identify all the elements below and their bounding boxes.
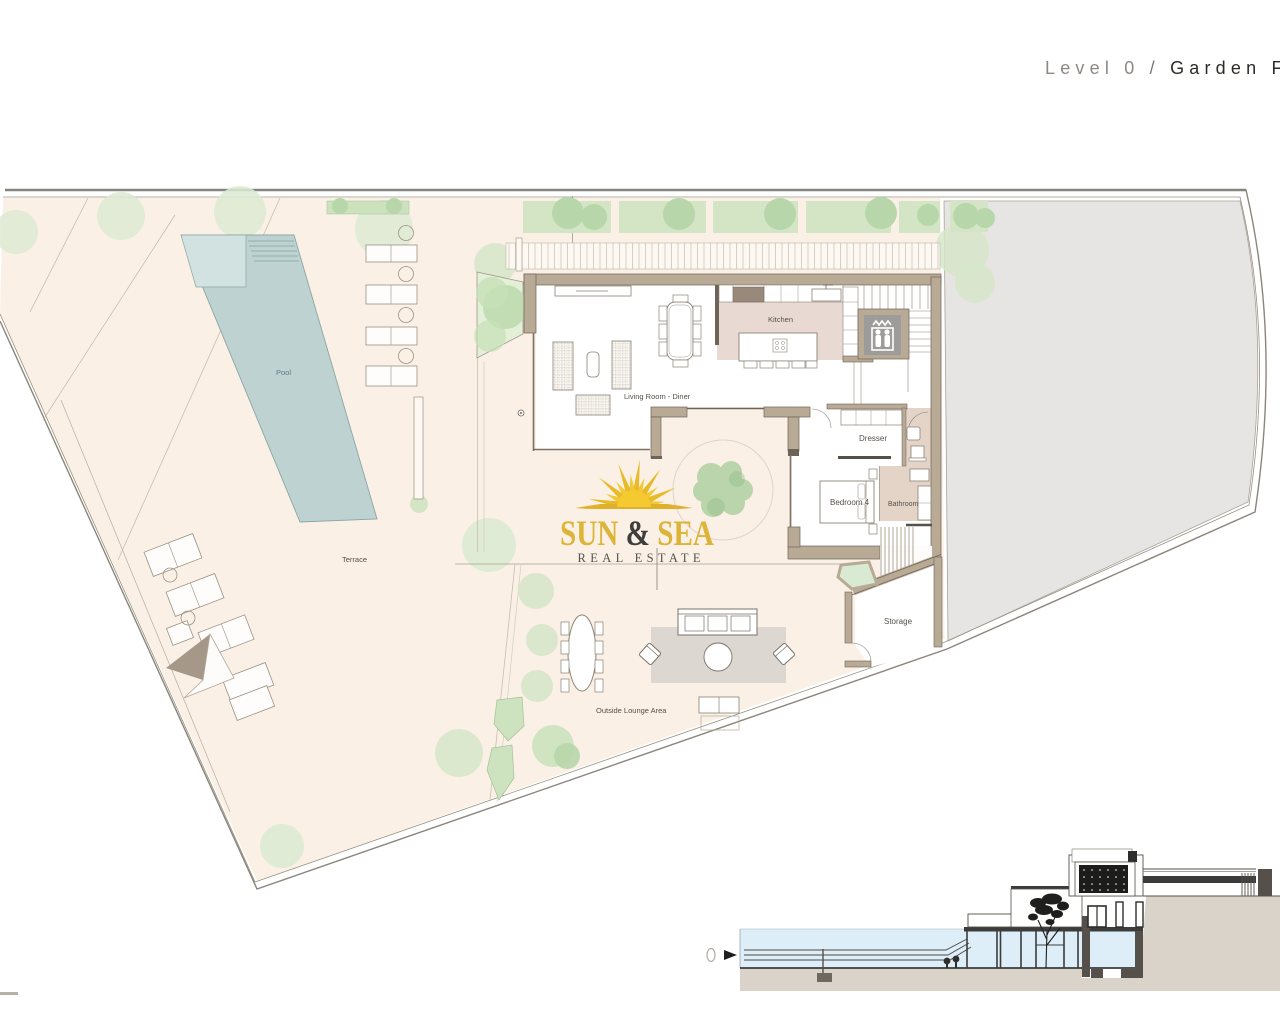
svg-text:Dresser: Dresser	[859, 434, 887, 443]
svg-text:Storage: Storage	[884, 617, 913, 626]
svg-text:Living Room - Diner: Living Room - Diner	[624, 392, 691, 401]
svg-text:Bathroom: Bathroom	[888, 501, 919, 508]
svg-text:Bedroom 4: Bedroom 4	[830, 498, 870, 507]
svg-text:SUN & SEA: SUN & SEA	[560, 513, 714, 553]
svg-text:Terrace: Terrace	[342, 555, 367, 564]
svg-text:REAL ESTATE: REAL ESTATE	[578, 551, 701, 565]
svg-text:Kitchen: Kitchen	[768, 315, 793, 324]
svg-text:Level 0 / Garden F: Level 0 / Garden F	[1045, 58, 1280, 78]
svg-text:Outside Lounge Area: Outside Lounge Area	[596, 706, 667, 715]
svg-text:Pool: Pool	[276, 368, 291, 377]
